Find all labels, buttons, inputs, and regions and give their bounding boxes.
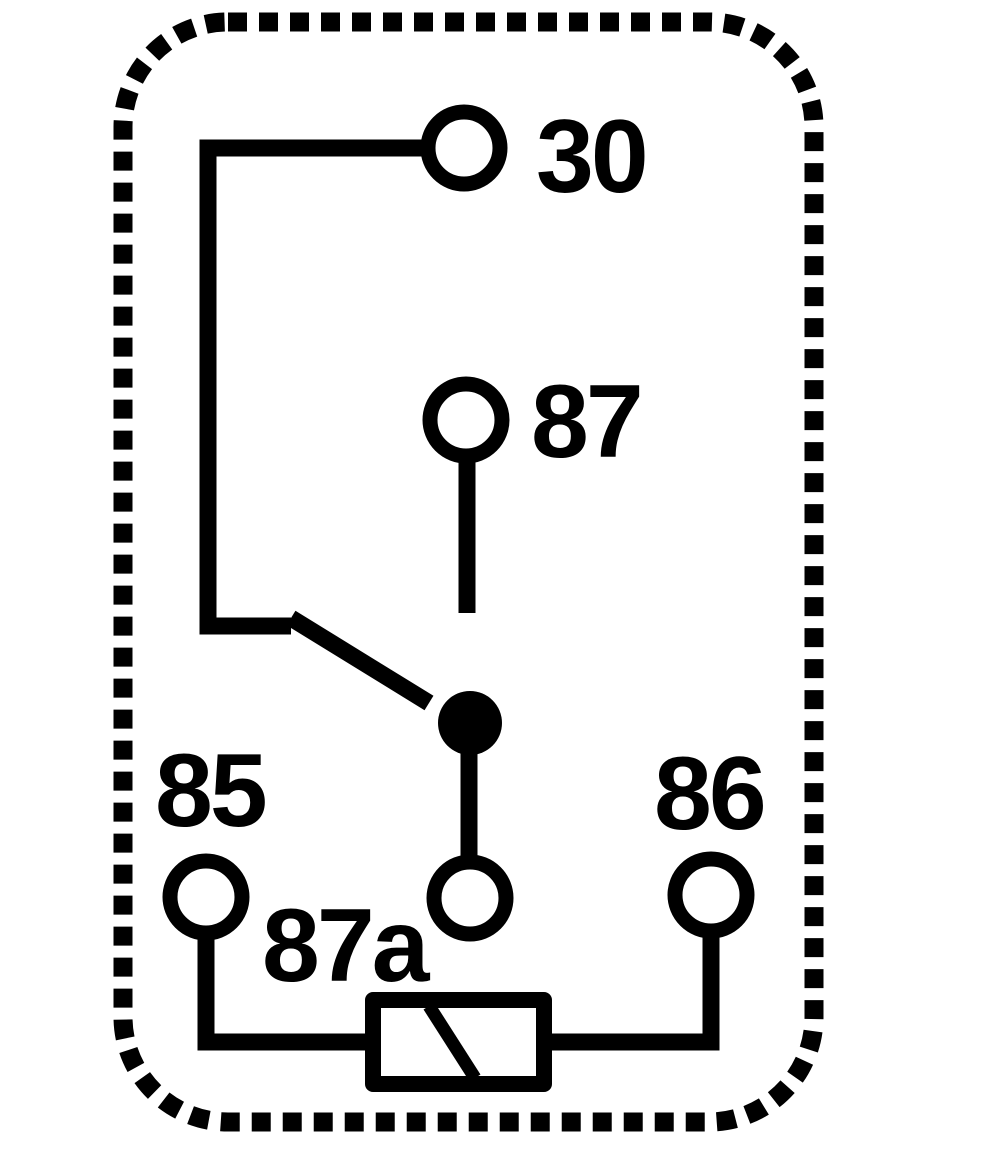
terminal-87a-label: 87a	[262, 888, 431, 1004]
terminal-86-circle	[675, 859, 747, 931]
terminal-85-circle	[170, 861, 242, 933]
wire-terminal30-to-switch	[208, 148, 426, 626]
terminal-30-circle	[428, 112, 500, 184]
terminal-87-circle	[430, 384, 502, 456]
terminal-85-label: 85	[155, 733, 265, 849]
switch-pivot-dot	[438, 691, 502, 755]
terminal-30-label: 30	[536, 99, 646, 215]
terminal-87-label: 87	[531, 364, 641, 480]
terminal-87a-circle	[434, 862, 506, 934]
terminal-86-label: 86	[654, 736, 764, 852]
wire-coil-to-terminal86	[548, 933, 711, 1042]
switch-arm	[291, 618, 429, 703]
relay-schematic-canvas: 30 87 85 86 87a	[0, 0, 1000, 1154]
relay-schematic-diagram: 30 87 85 86 87a	[0, 0, 1000, 1154]
